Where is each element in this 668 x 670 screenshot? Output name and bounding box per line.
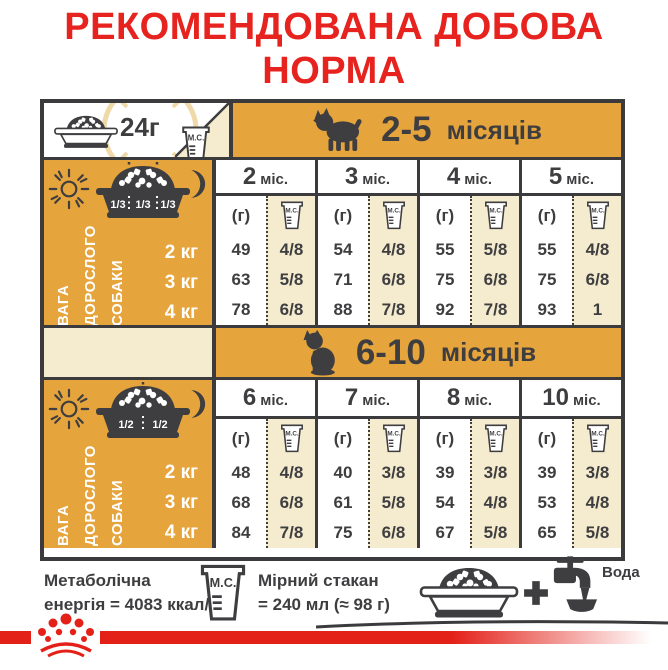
measuring-cup-note: Мірний стакан = 240 мл (≈ 98 г) — [258, 569, 390, 617]
grams-header: (г) — [522, 419, 572, 458]
weight-row-label: 2 кг — [128, 238, 198, 268]
dog-bowl-icon — [418, 567, 520, 619]
gram-cell: 88 — [318, 295, 368, 325]
measuring-cup-icon — [198, 564, 248, 622]
gram-cell: 54 — [318, 235, 368, 265]
cup-cell: 1 — [574, 295, 621, 325]
cup-cell: 5/8 — [472, 235, 519, 265]
section2-grid-row: 1/2 1/2 ВАГА ДОРОСЛОГО СОБАКИ 2 кг 3 кг … — [44, 380, 621, 548]
page-title-line2: НОРМА — [0, 49, 668, 93]
night-icon — [183, 389, 207, 419]
section1-month-columns: 2 міс. (г) 49 63 78 4/8 5/8 — [216, 160, 621, 325]
daily-amount-cell: 24г — [44, 103, 233, 157]
cup-cell: 4/8 — [268, 235, 315, 265]
month-column-7: 7 міс. (г) 40 61 75 3/8 5/8 — [315, 380, 417, 548]
section1-range: 2-5 — [381, 110, 432, 150]
night-icon — [183, 169, 207, 199]
gram-cell: 61 — [318, 488, 368, 518]
red-strip-right — [100, 631, 668, 644]
cup-cell: 3/8 — [370, 458, 417, 488]
water-label: Вода — [602, 564, 640, 581]
gram-cell: 48 — [216, 458, 266, 488]
measuring-cup-icon — [280, 201, 304, 230]
section2-range: 6-10 — [356, 333, 426, 373]
weight-row-label: 4 кг — [128, 518, 198, 548]
month-header: 10 міс. — [522, 380, 621, 419]
red-strip-left — [0, 631, 31, 644]
dog-bowl-icon — [53, 114, 119, 150]
month-header: 7 міс. — [318, 380, 417, 419]
gram-cell: 75 — [420, 265, 470, 295]
cup-cell: 6/8 — [268, 488, 315, 518]
cup-cell: 7/8 — [472, 295, 519, 325]
month-column-4: 4 міс. (г) 55 75 92 5/8 6/8 — [417, 160, 519, 325]
section2-sidebar: 1/2 1/2 ВАГА ДОРОСЛОГО СОБАКИ 2 кг 3 кг … — [44, 380, 216, 548]
month-header: 3 міс. — [318, 160, 417, 196]
section2-month-columns: 6 міс. (г) 48 68 84 4/8 6/8 — [216, 380, 621, 548]
gram-cell: 49 — [216, 235, 266, 265]
gram-cell: 78 — [216, 295, 266, 325]
measuring-cup-icon — [586, 201, 610, 230]
month-header: 4 міс. — [420, 160, 519, 196]
measuring-cup-icon — [181, 126, 211, 157]
cup-cell: 3/8 — [574, 458, 621, 488]
measuring-cup-icon — [280, 424, 304, 453]
grams-header: (г) — [318, 419, 368, 458]
month-column-8: 8 міс. (г) 39 54 67 3/8 4/8 — [417, 380, 519, 548]
weight-row-label: 2 кг — [128, 458, 198, 488]
gram-cell: 93 — [522, 295, 572, 325]
grams-header: (г) — [522, 196, 572, 235]
plus-icon — [523, 580, 549, 606]
cup-cell: 4/8 — [472, 488, 519, 518]
gram-cell: 63 — [216, 265, 266, 295]
grams-header: (г) — [216, 196, 266, 235]
measuring-cup-icon — [382, 201, 406, 230]
section2-title-band: 6-10 місяців — [216, 328, 621, 377]
grams-header: (г) — [420, 196, 470, 235]
gram-cell: 75 — [522, 265, 572, 295]
weight-row-label: 3 кг — [128, 268, 198, 298]
cup-cell: 5/8 — [472, 518, 519, 548]
section2-range-unit: місяців — [441, 337, 536, 368]
month-header: 5 міс. — [522, 160, 621, 196]
section2-header-row: 6-10 місяців — [44, 328, 621, 380]
weight-row-label: 3 кг — [128, 488, 198, 518]
feeding-guide-panel: РЕКОМЕНДОВАНА ДОБОВА НОРМА 24г — [0, 0, 668, 670]
section1-header-row: 24г 2-5 місяців — [44, 103, 621, 160]
grams-header: (г) — [420, 419, 470, 458]
cup-cell: 6/8 — [268, 295, 315, 325]
cup-cell: 6/8 — [370, 265, 417, 295]
measuring-cup-icon — [382, 424, 406, 453]
month-column-5: 5 міс. (г) 55 75 93 4/8 6/8 — [519, 160, 621, 325]
page-title-line1: РЕКОМЕНДОВАНА ДОБОВА — [0, 5, 668, 49]
cup-cell: 7/8 — [268, 518, 315, 548]
gram-cell: 68 — [216, 488, 266, 518]
section1-title-band: 2-5 місяців — [233, 103, 621, 157]
young-dog-silhouette-icon — [301, 330, 341, 376]
grams-header: (г) — [318, 196, 368, 235]
gram-cell: 55 — [522, 235, 572, 265]
gram-cell: 55 — [420, 235, 470, 265]
gram-cell: 84 — [216, 518, 266, 548]
gram-cell: 54 — [420, 488, 470, 518]
puppy-silhouette-icon — [312, 108, 366, 152]
month-column-10: 10 міс. (г) 39 53 65 3/8 4/8 — [519, 380, 621, 548]
section1-sidebar: 1/3 1/3 1/3 ВАГА ДОРОСЛОГО СОБАКИ 2 кг 3… — [44, 160, 216, 325]
month-header: 2 міс. — [216, 160, 315, 196]
gram-cell: 67 — [420, 518, 470, 548]
bottom-swoosh-line — [316, 618, 668, 630]
month-column-2: 2 міс. (г) 49 63 78 4/8 5/8 — [216, 160, 315, 325]
cup-cell: 4/8 — [370, 235, 417, 265]
cup-cell: 5/8 — [268, 265, 315, 295]
section1-range-unit: місяців — [447, 115, 542, 146]
gram-cell: 92 — [420, 295, 470, 325]
gram-cell: 71 — [318, 265, 368, 295]
svg-text:1/3: 1/3 — [160, 199, 175, 211]
water-tap-icon — [551, 556, 599, 614]
svg-text:1/2: 1/2 — [152, 419, 167, 431]
daily-amount-label: 24г — [120, 112, 160, 143]
cup-cell: 6/8 — [472, 265, 519, 295]
gram-cell: 53 — [522, 488, 572, 518]
measuring-cup-icon — [586, 424, 610, 453]
cup-cell: 6/8 — [370, 518, 417, 548]
royal-canin-crown-logo — [29, 610, 103, 660]
spacer-cell — [44, 328, 216, 377]
cup-cell: 7/8 — [370, 295, 417, 325]
cup-cell: 4/8 — [574, 235, 621, 265]
page-title: РЕКОМЕНДОВАНА ДОБОВА НОРМА — [0, 5, 668, 93]
month-header: 6 міс. — [216, 380, 315, 419]
feeding-table: 24г 2-5 місяців — [40, 99, 625, 561]
gram-cell: 39 — [420, 458, 470, 488]
grams-header: (г) — [216, 419, 266, 458]
gram-cell: 39 — [522, 458, 572, 488]
section1-grid-row: 1/3 1/3 1/3 ВАГА ДОРОСЛОГО СОБАКИ 2 кг 3… — [44, 160, 621, 328]
gram-cell: 75 — [318, 518, 368, 548]
month-column-3: 3 міс. (г) 54 71 88 4/8 6/8 — [315, 160, 417, 325]
cup-cell: 6/8 — [574, 265, 621, 295]
cup-cell: 5/8 — [370, 488, 417, 518]
measuring-cup-icon — [484, 201, 508, 230]
cup-cell: 3/8 — [472, 458, 519, 488]
month-column-6: 6 міс. (г) 48 68 84 4/8 6/8 — [216, 380, 315, 548]
weight-row-label: 4 кг — [128, 298, 198, 325]
gram-cell: 65 — [522, 518, 572, 548]
cup-cell: 4/8 — [268, 458, 315, 488]
measuring-cup-icon — [484, 424, 508, 453]
gram-cell: 40 — [318, 458, 368, 488]
cup-cell: 5/8 — [574, 518, 621, 548]
weight-rows: 2 кг 3 кг 4 кг — [128, 238, 198, 325]
month-header: 8 міс. — [420, 380, 519, 419]
cup-cell: 4/8 — [574, 488, 621, 518]
weight-rows: 2 кг 3 кг 4 кг — [128, 458, 198, 548]
